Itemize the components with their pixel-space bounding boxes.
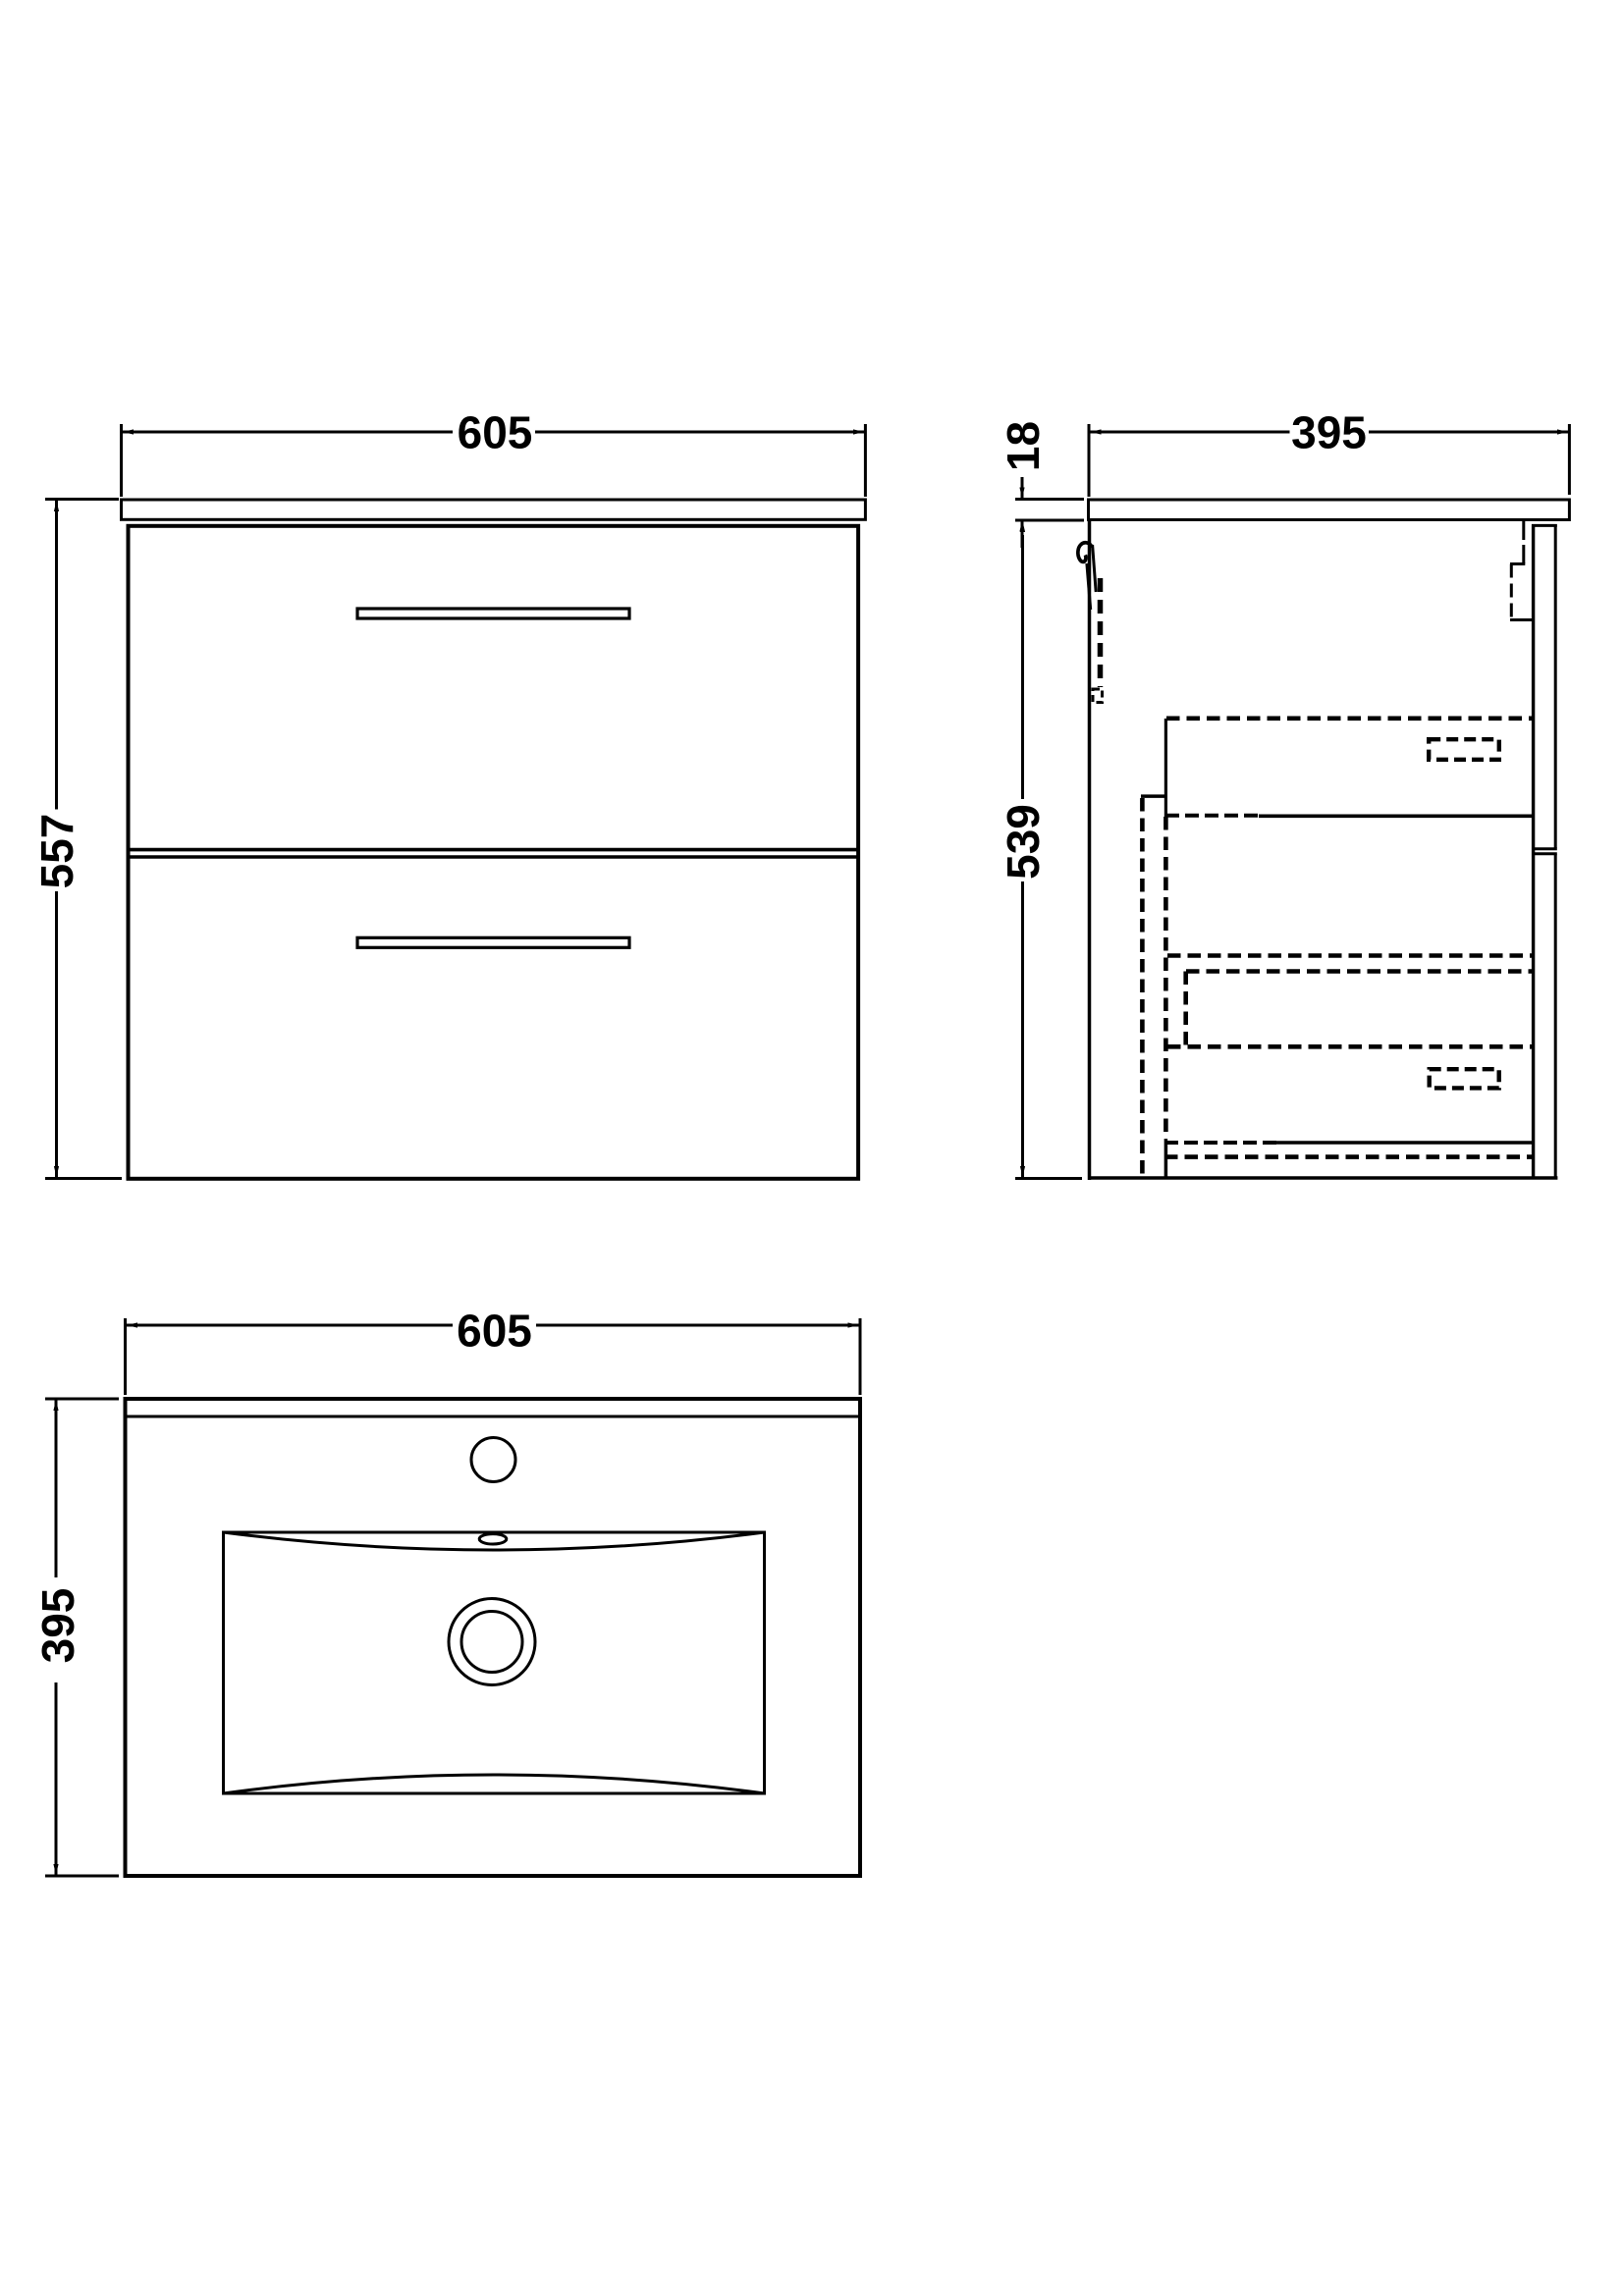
svg-text:395: 395 [32,1588,83,1664]
svg-text:605: 605 [457,1306,532,1357]
svg-text:557: 557 [31,814,82,889]
svg-text:605: 605 [458,407,533,458]
svg-text:18: 18 [998,421,1049,471]
svg-text:539: 539 [998,804,1049,880]
svg-text:395: 395 [1291,407,1367,458]
